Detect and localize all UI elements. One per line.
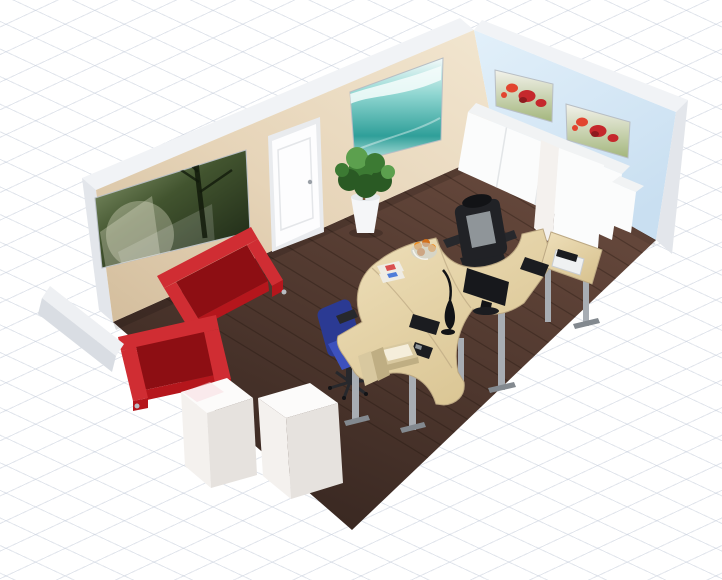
sofa-caster: [282, 290, 287, 295]
poppy-flower: [608, 134, 619, 142]
plant-foliage: [354, 174, 378, 198]
poppy-flower: [572, 125, 578, 131]
desk-leg: [498, 306, 505, 390]
chair-caster: [364, 392, 368, 396]
poppy-flower: [576, 118, 588, 127]
monitor-base: [473, 307, 499, 315]
poppy-flower: [506, 84, 518, 93]
poppy-flower: [536, 99, 547, 107]
cube-right-face: [286, 403, 343, 499]
floorplan-3d-canvas[interactable]: [0, 0, 722, 580]
white-cube-1[interactable]: [181, 378, 257, 488]
plant-foliage: [335, 163, 349, 177]
door-handle: [308, 180, 312, 184]
armchair-caster: [135, 404, 140, 409]
glass-bowl: [411, 243, 437, 260]
door[interactable]: [268, 117, 324, 252]
lamp-base: [441, 329, 455, 335]
chair-caster: [328, 386, 332, 390]
desk-leg: [409, 372, 416, 430]
plant-foliage: [346, 147, 368, 169]
cube-right-face: [207, 398, 257, 488]
poppy-flower-shadow: [519, 97, 527, 103]
chair-caster: [342, 396, 346, 400]
poppy-flower: [501, 92, 507, 98]
poppy-flower-shadow: [591, 131, 599, 137]
planner-3d-viewport[interactable]: [0, 0, 722, 580]
white-cube-2[interactable]: [258, 383, 343, 499]
plant-foliage: [381, 165, 395, 179]
